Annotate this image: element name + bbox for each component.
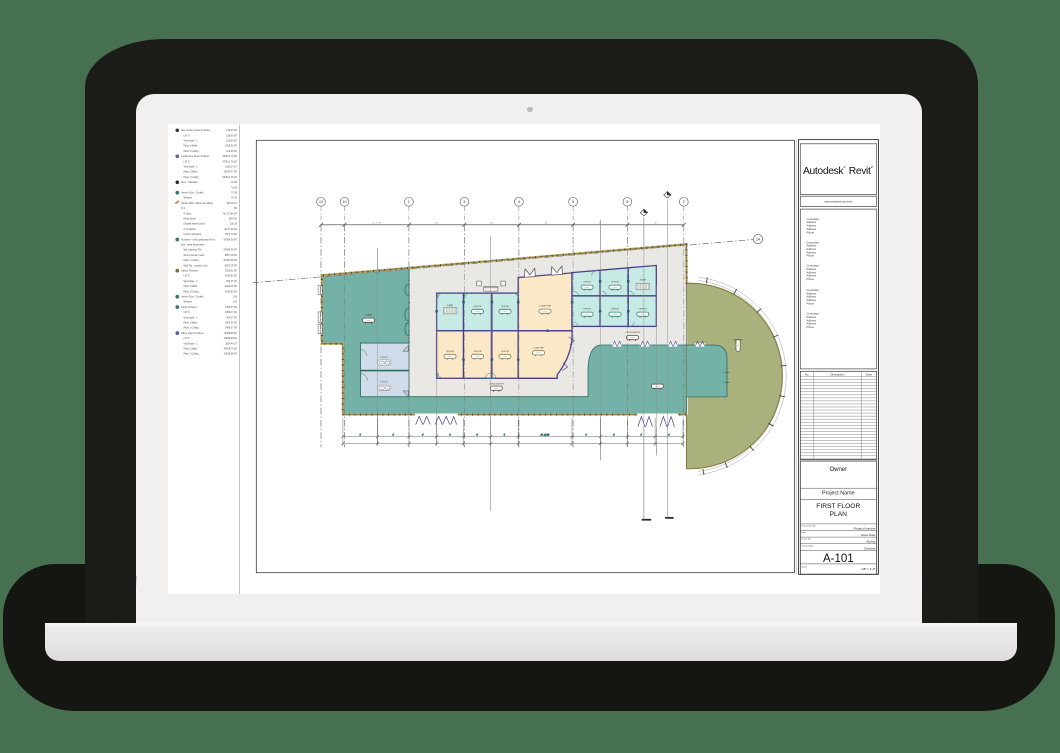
svg-text:9': 9': [422, 434, 424, 436]
svg-text:9': 9': [668, 434, 670, 436]
svg-text:Vinyl base - 1: Vinyl base - 1: [183, 317, 198, 319]
svg-text:Door - Standard: Door - Standard: [181, 181, 198, 184]
svg-text:9': 9': [640, 434, 642, 436]
svg-text:Site Lumber space Finishes: Site Lumber space Finishes: [181, 129, 211, 132]
svg-text:Phone: Phone: [806, 277, 814, 281]
svg-text:OFFICE: OFFICE: [500, 351, 509, 353]
svg-text:Checked By: Checked By: [801, 545, 813, 547]
svg-text:STAIR: STAIR: [446, 304, 453, 307]
svg-text:1265.30 SF: 1265.30 SF: [224, 145, 237, 147]
svg-text:www.autodesk.com/revit: www.autodesk.com/revit: [824, 199, 852, 203]
svg-text:OFFICE: OFFICE: [500, 306, 509, 308]
svg-text:37.00: 37.00: [231, 192, 238, 194]
svg-text:3456.07 SF: 3456.07 SF: [224, 312, 237, 314]
svg-text:OFFICE: OFFICE: [473, 351, 482, 353]
svg-text:Issue Date: Issue Date: [860, 533, 875, 537]
svg-text:26076.37 SF: 26076.37 SF: [223, 171, 237, 173]
svg-text:2035.82 SF: 2035.82 SF: [224, 270, 237, 272]
svg-text:Paint 1 Walls: Paint 1 Walls: [183, 170, 197, 173]
svg-text:Interior Door - Double: Interior Door - Double: [181, 295, 204, 298]
svg-text:12' - 1 7/8": 12' - 1 7/8": [372, 222, 381, 224]
svg-text:LOBBY: LOBBY: [364, 314, 372, 316]
svg-text:9': 9': [476, 434, 478, 436]
svg-text:Office space Finishes: Office space Finishes: [181, 333, 204, 335]
svg-text:Paint 1 Walls: Paint 1 Walls: [183, 285, 197, 288]
svg-text:Conference Room Finishes: Conference Room Finishes: [181, 155, 210, 158]
svg-text:8057.3P SF: 8057.3P SF: [224, 255, 237, 257]
svg-text:Project Number: Project Number: [854, 526, 876, 530]
svg-text:Interior Wall - Work core Meta: Interior Wall - Work core Metal: [181, 202, 213, 205]
svg-text:97564.35 SF: 97564.35 SF: [223, 260, 237, 262]
svg-text:9': 9': [503, 434, 505, 436]
svg-text:LVT 6: LVT 6: [183, 275, 190, 277]
svg-text:2035x1 76 SF: 2035x1 76 SF: [222, 177, 237, 179]
svg-text:6: 6: [626, 200, 628, 204]
svg-text:No.: No.: [804, 372, 809, 376]
svg-text:Paint 1 Ceiling: Paint 1 Ceiling: [183, 259, 199, 262]
svg-text:STAIR: STAIR: [639, 278, 646, 281]
svg-text:Paint 1 Walls: Paint 1 Walls: [183, 321, 197, 324]
svg-text:54': 54': [544, 222, 547, 224]
svg-text:14: 14: [756, 237, 760, 241]
svg-text:1.00: 1.00: [232, 301, 237, 303]
svg-text:GALLERY: GALLERY: [732, 338, 743, 341]
svg-text:2" Brick: 2" Brick: [183, 212, 192, 215]
svg-text:Window: Window: [183, 197, 192, 199]
svg-text:Metal Studs: Metal Studs: [183, 217, 196, 220]
svg-text:TOILET: TOILET: [380, 381, 388, 383]
svg-text:10: 10: [342, 200, 346, 204]
svg-text:Description: Description: [830, 372, 844, 376]
svg-text:Autodesk´ Revit´: Autodesk´ Revit´: [803, 165, 874, 177]
svg-text:Paint 1 Ceiling: Paint 1 Ceiling: [183, 176, 199, 179]
svg-text:8057.3P SF: 8057.3P SF: [224, 265, 237, 267]
svg-text:St 2: St 2: [181, 207, 186, 210]
svg-text:Phone: Phone: [806, 253, 814, 257]
svg-text:Drawn By: Drawn By: [801, 537, 811, 540]
svg-text:1065.14 LF: 1065.14 LF: [225, 166, 237, 168]
svg-text:2035x1 76 SF: 2035x1 76 SF: [222, 161, 237, 163]
svg-text:1/8" = 1'-0": 1/8" = 1'-0": [861, 567, 875, 571]
svg-text:Owner: Owner: [829, 467, 847, 473]
svg-text:2" insulation: 2" insulation: [183, 228, 196, 231]
svg-text:Lobby Finishes: Lobby Finishes: [181, 307, 197, 309]
svg-text:13: 13: [319, 200, 323, 204]
svg-text:31.69: 31.69: [231, 187, 238, 189]
svg-text:Vinyl base - 1: Vinyl base - 1: [183, 166, 198, 168]
svg-text:Vinyl base - 1: Vinyl base - 1: [183, 343, 198, 345]
svg-text:Phone: Phone: [806, 301, 814, 305]
svg-text:9': 9': [585, 434, 587, 436]
svg-text:Interior Door - Double: Interior Door - Double: [181, 191, 204, 194]
svg-text:Drywall sheets (soft): Drywall sheets (soft): [183, 222, 204, 225]
svg-text:Paint 1 Ceiling: Paint 1 Ceiling: [183, 290, 199, 293]
svg-text:37.00: 37.00: [231, 197, 238, 199]
svg-text:OFFICE: OFFICE: [610, 308, 619, 310]
svg-text:Work premium paint: Work premium paint: [183, 254, 204, 257]
svg-text:2: 2: [682, 200, 684, 204]
svg-text:A-101: A-101: [822, 553, 853, 565]
svg-text:10038.88 SF: 10038.88 SF: [223, 338, 237, 340]
svg-text:SF: SF: [234, 208, 238, 210]
svg-text:97564.39 SF: 97564.39 SF: [223, 239, 237, 241]
svg-text:10038.88 SF: 10038.88 SF: [223, 353, 237, 355]
svg-text:9': 9': [613, 434, 615, 436]
svg-text:FIRST FLOOR: FIRST FLOOR: [816, 503, 860, 510]
svg-text:126.00 SF: 126.00 SF: [226, 135, 237, 137]
svg-text:226.1b: 226.1b: [229, 223, 237, 225]
svg-text:924.07 SF: 924.07 SF: [226, 317, 237, 319]
svg-text:4b.37.2b SF: 4b.37.2b SF: [224, 229, 237, 231]
svg-text:Wall Tile - ceramic (six): Wall Tile - ceramic (six): [183, 264, 207, 267]
svg-text:4p.37.26k SF: 4p.37.26k SF: [223, 213, 237, 215]
svg-text:PLAN: PLAN: [829, 511, 847, 518]
svg-text:3456.07 SF: 3456.07 SF: [224, 327, 237, 329]
svg-text:126.00 SF: 126.00 SF: [226, 140, 237, 142]
svg-text:Paint 1 Ceiling: Paint 1 Ceiling: [183, 352, 199, 355]
svg-text:6185.30 SF: 6185.30 SF: [224, 322, 237, 324]
svg-text:OFFICE: OFFICE: [583, 281, 592, 283]
svg-text:56': 56': [654, 222, 657, 224]
svg-text:54': 54': [435, 222, 438, 224]
svg-text:Paint 1 Ceiling: Paint 1 Ceiling: [183, 326, 199, 329]
svg-text:OFFICE: OFFICE: [473, 306, 482, 308]
svg-text:1.00: 1.00: [232, 296, 237, 298]
svg-text:Vinyl base - 1: Vinyl base - 1: [183, 140, 198, 142]
svg-text:54': 54': [490, 222, 493, 224]
svg-text:126.00 SF: 126.00 SF: [226, 130, 237, 132]
svg-text:Vinyl base - 1: Vinyl base - 1: [183, 281, 198, 283]
svg-text:Author: Author: [866, 539, 875, 543]
svg-text:Furniture - desk (chaircase) F: Furniture - desk (chaircase) Furn: [181, 238, 216, 241]
svg-text:3814.49 LF: 3814.49 LF: [225, 343, 237, 345]
svg-text:Checker: Checker: [863, 546, 875, 550]
svg-text:Nat Carpeted Tile: Nat Carpeted Tile: [183, 248, 202, 251]
svg-text:Window: Window: [183, 301, 192, 303]
svg-text:2035x1 76 SF: 2035x1 76 SF: [222, 156, 237, 158]
svg-text:Project Number: Project Number: [801, 524, 816, 527]
svg-text:2267.00: 2267.00: [228, 218, 237, 220]
svg-text:9': 9': [359, 434, 361, 436]
svg-text:1: 1: [407, 200, 409, 204]
svg-text:9': 9': [392, 434, 394, 436]
svg-text:Scale: Scale: [801, 566, 807, 568]
svg-text:LVT 6: LVT 6: [183, 338, 190, 340]
svg-text:3456.07 SF: 3456.07 SF: [224, 307, 237, 309]
svg-text:Paint 1 Walls: Paint 1 Walls: [183, 347, 197, 350]
svg-text:2035.82 SF: 2035.82 SF: [224, 275, 237, 277]
svg-text:OFFICE: OFFICE: [445, 351, 454, 353]
svg-text:27' - 11 5/8": 27' - 11 5/8": [540, 434, 549, 436]
svg-text:Interior wall paint: Interior wall paint: [183, 233, 201, 236]
svg-text:Project Name: Project Name: [821, 490, 854, 496]
svg-text:OFFICE: OFFICE: [583, 308, 592, 310]
svg-text:ture - desk (chaircase): ture - desk (chaircase): [181, 243, 204, 246]
svg-text:LVT 6: LVT 6: [183, 135, 190, 137]
svg-text:CIRCULATION: CIRCULATION: [488, 382, 503, 385]
svg-text:3: 3: [463, 200, 465, 204]
svg-text:Gallery Finishes: Gallery Finishes: [181, 269, 199, 272]
svg-text:Date: Date: [866, 372, 872, 376]
svg-text:CONF RM: CONF RM: [533, 347, 543, 349]
svg-text:4: 4: [517, 200, 519, 204]
svg-text:Paint 1 Ceiling: Paint 1 Ceiling: [183, 150, 199, 153]
svg-text:5: 5: [572, 200, 574, 204]
svg-text:OFFICE: OFFICE: [610, 281, 619, 283]
svg-text:2642.16 SF: 2642.16 SF: [224, 286, 237, 288]
svg-text:49636.70 SF: 49636.70 SF: [223, 348, 237, 350]
svg-text:CLIENT RM: CLIENT RM: [539, 305, 551, 307]
svg-text:LVT 6: LVT 6: [183, 161, 190, 163]
svg-text:31.69: 31.69: [231, 182, 238, 184]
svg-text:Paint 1 Walls: Paint 1 Walls: [183, 144, 197, 147]
svg-text:7031.76 SF: 7031.76 SF: [224, 234, 237, 236]
svg-text:TOILET: TOILET: [380, 357, 388, 359]
svg-text:OFFICE: OFFICE: [638, 308, 647, 310]
svg-text:Phone: Phone: [806, 230, 814, 234]
svg-text:2035.82 SF: 2035.82 SF: [224, 291, 237, 293]
svg-text:LVT 6: LVT 6: [183, 312, 190, 314]
svg-text:10038.88 SF: 10038.88 SF: [223, 333, 237, 335]
svg-text:97564.39 SF: 97564.39 SF: [223, 249, 237, 251]
svg-text:306.3T SF: 306.3T SF: [226, 281, 237, 283]
svg-text:126.00 SF: 126.00 SF: [226, 151, 237, 153]
svg-text:Phone: Phone: [806, 325, 814, 329]
svg-text:9': 9': [449, 434, 451, 436]
svg-text:426.03.27: 426.03.27: [226, 203, 237, 205]
